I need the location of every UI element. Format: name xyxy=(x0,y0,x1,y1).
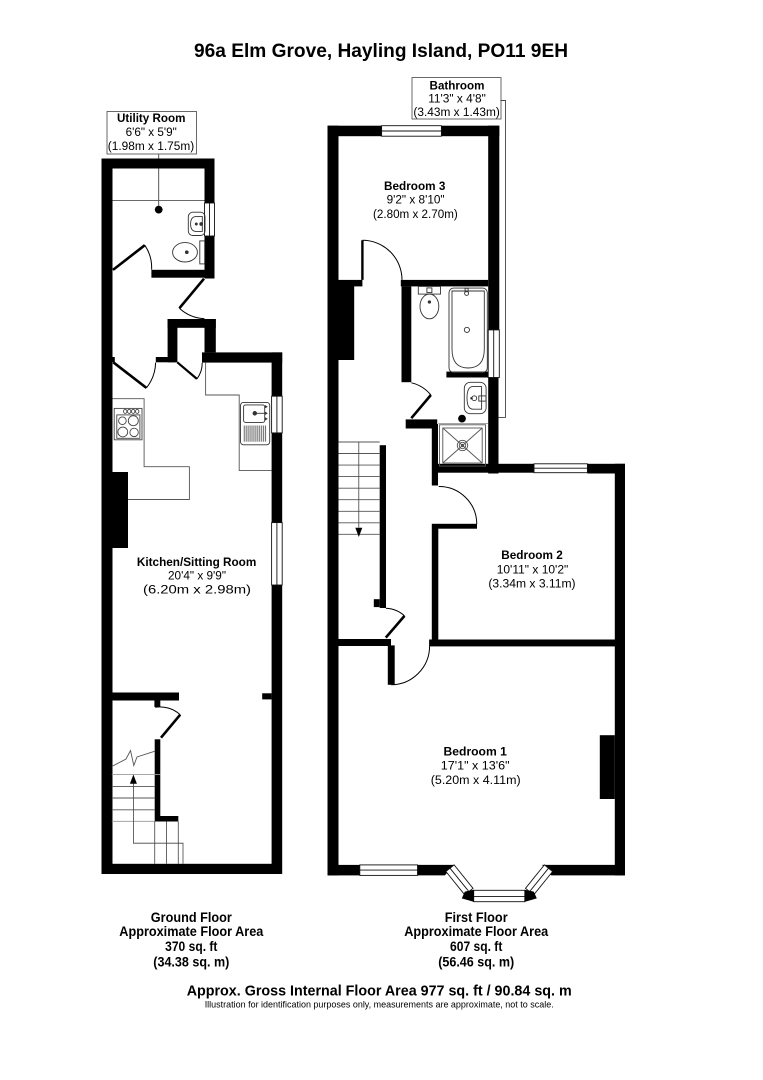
svg-text:10'11" x 10'2": 10'11" x 10'2" xyxy=(497,562,569,576)
svg-text:96a Elm Grove, Hayling Island,: 96a Elm Grove, Hayling Island, PO11 9EH xyxy=(194,40,568,62)
svg-text:First Floor: First Floor xyxy=(445,910,509,925)
svg-text:(1.98m x 1.75m): (1.98m x 1.75m) xyxy=(108,139,194,153)
svg-text:Kitchen/Sitting Room: Kitchen/Sitting Room xyxy=(137,555,256,569)
svg-text:(34.38 sq. m): (34.38 sq. m) xyxy=(153,955,229,970)
svg-text:370 sq. ft: 370 sq. ft xyxy=(165,939,218,954)
svg-text:Approximate Floor Area: Approximate Floor Area xyxy=(119,924,263,939)
svg-text:607 sq. ft: 607 sq. ft xyxy=(450,939,503,954)
svg-text:(5.20m x 4.11m): (5.20m x 4.11m) xyxy=(431,773,521,787)
svg-text:(2.80m x 2.70m): (2.80m x 2.70m) xyxy=(373,207,458,221)
svg-text:(3.34m x 3.11m): (3.34m x 3.11m) xyxy=(488,577,575,591)
svg-text:Bedroom 3: Bedroom 3 xyxy=(384,179,445,193)
svg-text:11'3" x 4'8": 11'3" x 4'8" xyxy=(428,91,486,105)
svg-text:Illustration for identificatio: Illustration for identification purposes… xyxy=(205,999,554,1009)
svg-text:Ground Floor: Ground Floor xyxy=(151,910,233,925)
svg-text:9'2" x 8'10": 9'2" x 8'10" xyxy=(387,193,445,207)
svg-text:Approx. Gross Internal Floor A: Approx. Gross Internal Floor Area 977 sq… xyxy=(187,983,572,999)
svg-text:6'6" x 5'9": 6'6" x 5'9" xyxy=(126,125,177,139)
svg-text:(3.43m x 1.43m): (3.43m x 1.43m) xyxy=(413,105,499,119)
svg-text:17'1" x 13'6": 17'1" x 13'6" xyxy=(441,759,510,773)
svg-text:Bathroom: Bathroom xyxy=(430,78,485,92)
svg-text:(56.46 sq. m): (56.46 sq. m) xyxy=(438,955,514,970)
svg-text:Approximate Floor Area: Approximate Floor Area xyxy=(404,924,548,939)
svg-text:Bedroom 1: Bedroom 1 xyxy=(444,744,507,758)
svg-text:20'4" x 9'9": 20'4" x 9'9" xyxy=(168,569,226,583)
svg-text:Bedroom 2: Bedroom 2 xyxy=(501,548,563,562)
svg-text:(6.20m x 2.98m): (6.20m x 2.98m) xyxy=(143,583,251,597)
svg-text:Utility Room: Utility Room xyxy=(117,111,185,125)
